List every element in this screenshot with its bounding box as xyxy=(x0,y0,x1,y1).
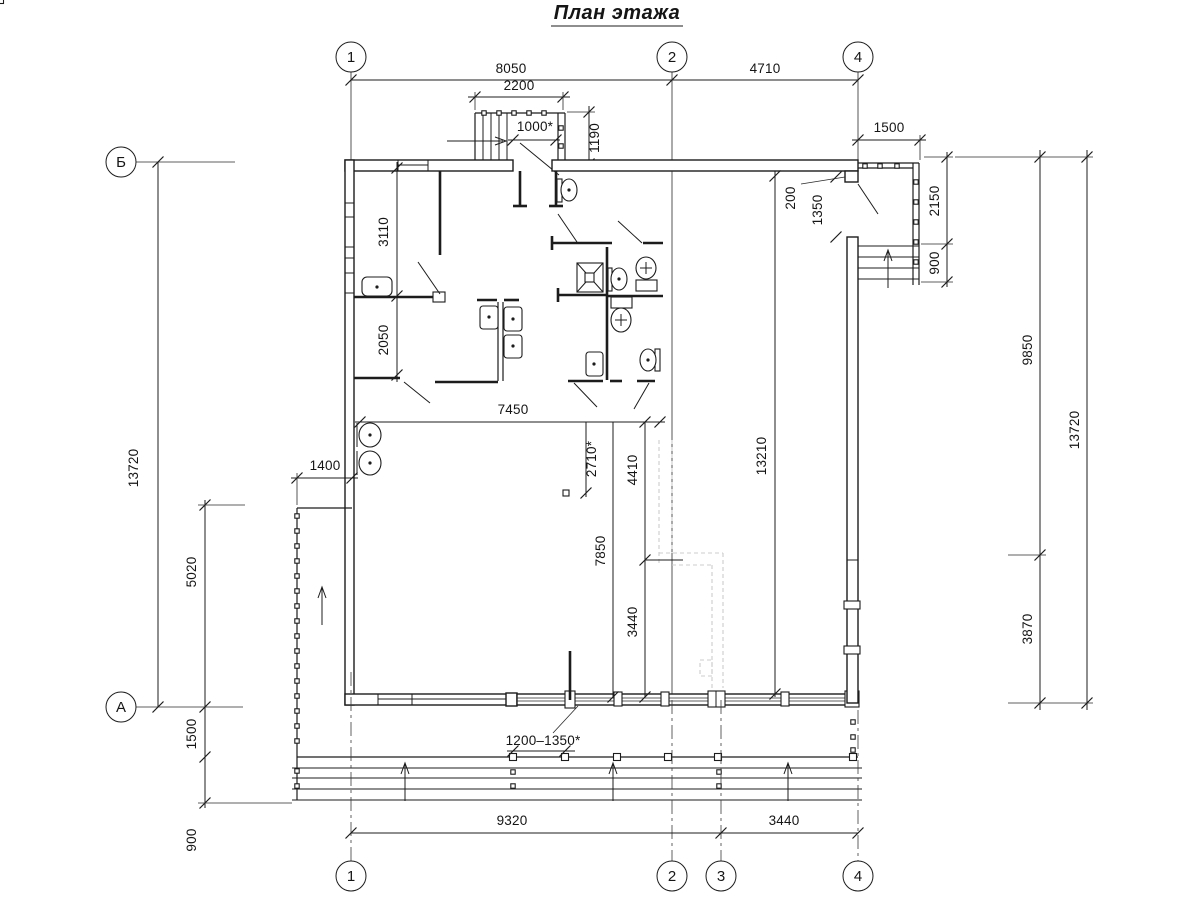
top-wall-left xyxy=(345,160,513,171)
dim-13720-left: 13720 xyxy=(126,449,141,488)
axis-label: 2 xyxy=(668,49,676,66)
dim-13210: 13210 xyxy=(754,437,769,476)
terrace-arrow xyxy=(401,763,409,801)
dim-3440-bottom: 3440 xyxy=(769,813,800,828)
dim-4410: 4410 xyxy=(625,455,640,486)
axis-label: 1 xyxy=(347,49,355,66)
axis-label: 4 xyxy=(854,49,862,66)
door-swing xyxy=(418,262,440,294)
left-wall xyxy=(345,160,354,705)
dim-200: 200 xyxy=(783,186,798,209)
dim-900-right: 900 xyxy=(927,251,942,274)
dim-4710: 4710 xyxy=(750,61,781,76)
door-swing xyxy=(618,221,642,243)
axis-label: А xyxy=(116,699,126,716)
drawing-title: План этажа xyxy=(551,2,683,26)
page-title: План этажа xyxy=(554,2,681,24)
dim-9850: 9850 xyxy=(1020,335,1035,366)
axis-markers-top: 1 2 4 xyxy=(336,42,873,171)
dim-900-left: 900 xyxy=(184,828,199,851)
axis-label: 1 xyxy=(347,868,355,885)
dim-1350: 1350 xyxy=(810,195,825,226)
door-swing xyxy=(558,214,577,242)
dim-13720-right: 13720 xyxy=(1067,411,1082,450)
dim-3440-mid: 3440 xyxy=(625,607,640,638)
dim-7850: 7850 xyxy=(593,536,608,567)
axis-label: 4 xyxy=(854,868,862,885)
bottom-terrace: 1200–1350* xyxy=(292,706,862,801)
axis-label: Б xyxy=(116,154,126,171)
dims-right: 9850 3870 13720 xyxy=(955,150,1093,710)
dim-2710: 2710* xyxy=(584,440,599,477)
right-wall xyxy=(847,237,858,703)
door-swing xyxy=(574,383,597,407)
dims-left: Б А 13720 5020 1500 900 1400 xyxy=(106,147,358,852)
entry-arrow xyxy=(318,587,326,625)
corner-door-jamb xyxy=(845,171,858,182)
corner-door-swing xyxy=(858,184,878,214)
axis-label: 2 xyxy=(668,868,676,885)
dim-1000: 1000* xyxy=(517,119,554,134)
axis-label: 3 xyxy=(717,868,725,885)
dim-2050: 2050 xyxy=(376,325,391,356)
dim-1400: 1400 xyxy=(310,458,341,473)
left-porch xyxy=(295,508,352,800)
dim-3110: 3110 xyxy=(376,217,391,247)
floor-plan-page: План этажа 1 2 4 8050 4710 2200 xyxy=(0,0,1200,900)
door-swing xyxy=(404,382,430,403)
dim-1500-porch: 1500 xyxy=(874,120,905,135)
dim-8050: 8050 xyxy=(496,61,527,76)
floor-plan-drawing: План этажа 1 2 4 8050 4710 2200 xyxy=(0,0,1200,900)
terrace-arrow xyxy=(784,763,792,801)
fixtures xyxy=(357,179,660,475)
dashed-furniture-outline xyxy=(659,440,723,688)
toilet-tank xyxy=(611,297,632,308)
dim-9320: 9320 xyxy=(497,813,528,828)
dim-2150: 2150 xyxy=(927,186,942,217)
toilet-tank xyxy=(636,280,657,291)
door-swing xyxy=(634,383,649,409)
dim-top: 8050 4710 2200 xyxy=(346,61,864,110)
dim-1500-left: 1500 xyxy=(184,719,199,750)
dim-1190: 1190 xyxy=(587,123,602,153)
dim-3870: 3870 xyxy=(1020,614,1035,645)
top-wall-right xyxy=(552,160,858,171)
side-porch: 1500 2150 900 xyxy=(852,120,953,288)
window-mullion xyxy=(844,601,860,609)
dim-2200: 2200 xyxy=(504,78,535,93)
terrace-arrow xyxy=(609,763,617,801)
dim-7450: 7450 xyxy=(498,402,529,417)
dim-5020: 5020 xyxy=(184,557,199,588)
